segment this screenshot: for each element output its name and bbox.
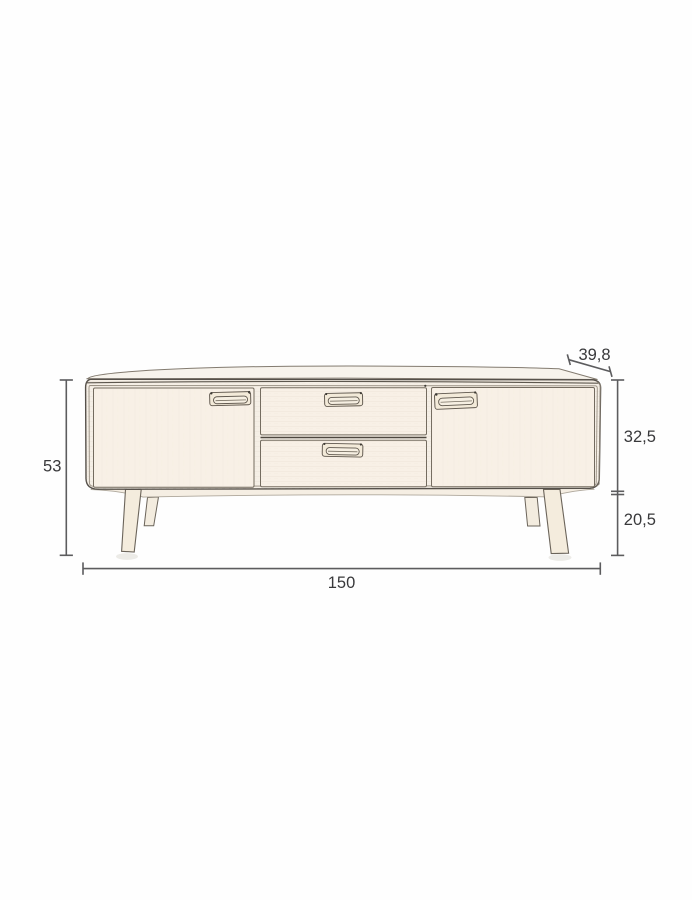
svg-text:32,5: 32,5 [624, 428, 656, 446]
svg-text:20,5: 20,5 [624, 511, 656, 529]
svg-text:39,8: 39,8 [578, 346, 610, 364]
svg-text:150: 150 [328, 574, 356, 592]
svg-text:53: 53 [43, 458, 61, 476]
